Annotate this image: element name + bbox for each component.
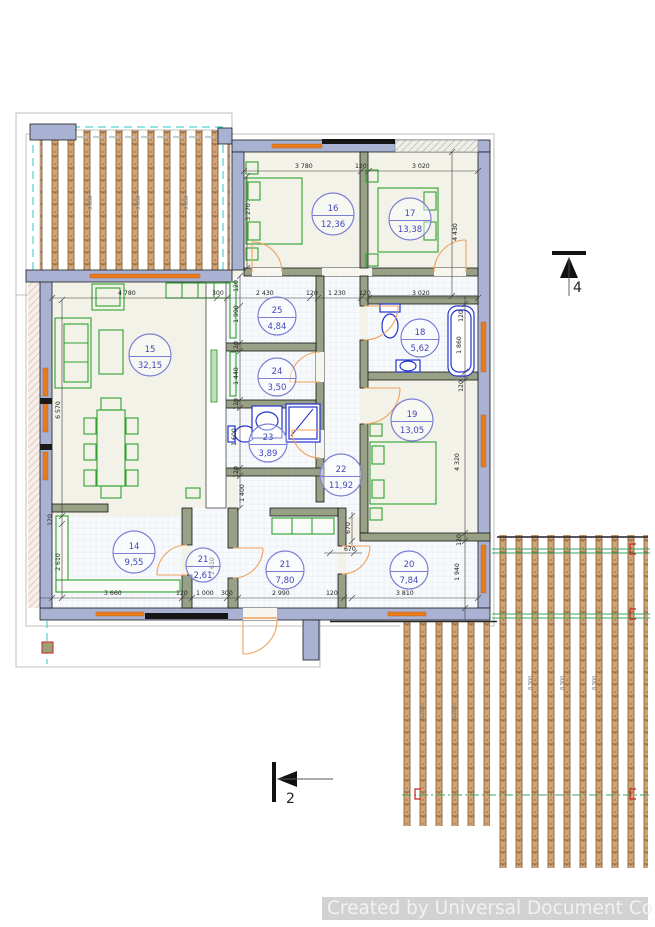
room-label-23: 23 3,89 <box>249 424 287 462</box>
lintel-top <box>322 139 395 144</box>
section-marker-4: 4 <box>552 251 586 296</box>
section-marker-2: 2 <box>272 762 333 807</box>
lintel-bottom <box>145 613 228 619</box>
joist-length-label: 6 280 <box>420 706 426 720</box>
wall-kitchen-stub <box>52 504 108 512</box>
dim-text: 120 <box>47 514 54 526</box>
passage-opening <box>322 268 372 276</box>
dim-text: 120 <box>233 466 240 478</box>
window-post <box>40 398 52 404</box>
dim-text: 2 990 <box>272 590 290 597</box>
dim-text: 1 400 <box>239 484 246 502</box>
dim-text: 3 020 <box>412 290 430 297</box>
dim-text: 1 440 <box>233 367 240 385</box>
dim-text: 1 940 <box>454 563 461 581</box>
section-label: 2 <box>286 791 295 807</box>
room-label-25: 25 4,84 <box>258 297 296 335</box>
dim-text: 120 <box>306 290 318 297</box>
window-right-bedroom <box>481 415 486 467</box>
section-bar <box>272 762 276 802</box>
room-label-17: 17 13,38 <box>389 198 431 240</box>
room-label-16: 16 12,36 <box>312 193 354 235</box>
svg-text:13,05: 13,05 <box>400 426 424 436</box>
dim-text: 120 <box>176 590 188 597</box>
dim-text: 4 430 <box>452 223 459 241</box>
room-label-24: 24 3,50 <box>258 358 296 396</box>
dim-text: 3 660 <box>104 590 122 597</box>
hall-cabinet <box>272 518 334 534</box>
dim-text: 300 <box>221 590 233 597</box>
svg-text:16: 16 <box>328 204 339 214</box>
wall-19-20 <box>360 533 490 541</box>
window-left-3 <box>43 452 48 480</box>
svg-text:24: 24 <box>272 367 283 377</box>
dim-text: 120 <box>233 280 240 292</box>
dim-text: 1 000 <box>196 590 214 597</box>
dim-text: 3 780 <box>295 163 313 170</box>
dim-text: 1 230 <box>328 290 346 297</box>
svg-text:9,55: 9,55 <box>125 558 144 568</box>
wall-left <box>40 272 52 608</box>
joist-length-label: 8 900 <box>528 676 534 690</box>
window-right-bath <box>481 322 486 372</box>
dim-text: 3 270 <box>245 203 252 221</box>
window-bottom-room20 <box>388 612 426 616</box>
dim-text: 2 610 <box>55 553 62 571</box>
svg-text:12,36: 12,36 <box>321 220 345 230</box>
room-label-21b: 21 7,80 <box>266 551 304 589</box>
svg-text:4,84: 4,84 <box>268 322 287 332</box>
room-label-20: 20 7,84 <box>390 551 428 589</box>
door-opening <box>316 352 324 382</box>
svg-text:21: 21 <box>198 555 209 565</box>
wall-hall-stub <box>270 508 338 516</box>
dim-text: 3 020 <box>412 163 430 170</box>
svg-text:7,80: 7,80 <box>276 576 295 586</box>
joist-length-label: 3 650 <box>136 196 142 210</box>
wall-segment <box>182 508 192 545</box>
dim-text: 120 <box>456 534 463 546</box>
dim-text: 670 <box>345 522 352 534</box>
window-top <box>272 144 322 148</box>
porch-details <box>42 620 53 664</box>
watermark-text: Created by Universal Document Converter <box>327 898 655 919</box>
window-living-top <box>90 274 200 278</box>
watermark: Created by Universal Document Converter <box>322 897 655 920</box>
porch-pillar <box>303 620 319 660</box>
dim-text: 6 570 <box>55 401 62 419</box>
dim-text: 120 <box>233 398 240 410</box>
svg-text:21: 21 <box>280 560 291 570</box>
room-label-14: 14 9,55 <box>113 531 155 573</box>
svg-text:3,50: 3,50 <box>268 383 287 393</box>
dim-text: 670 <box>344 546 356 553</box>
floor-plan-drawing: 3 650 3 650 3 650 6 280 6 280 8 900 8 90… <box>0 0 655 927</box>
svg-text:13,38: 13,38 <box>398 225 422 235</box>
dim-text: 120 <box>355 163 367 170</box>
wall-segment <box>228 508 238 548</box>
wall-segment <box>360 340 368 388</box>
wall-segment <box>338 574 346 608</box>
dim-text: 1 990 <box>233 305 240 323</box>
window-post <box>40 444 52 450</box>
joist-length-label: 8 900 <box>560 676 566 690</box>
svg-text:5,62: 5,62 <box>411 344 430 354</box>
exterior-strip-hatch <box>28 282 40 608</box>
svg-text:17: 17 <box>405 209 416 219</box>
door-entrance <box>243 620 277 654</box>
shower-inner <box>289 407 317 439</box>
window-right-room20 <box>481 545 486 593</box>
door-opening <box>252 268 282 276</box>
joist-length-label: 3 650 <box>88 196 94 210</box>
pergola-deck: 3 650 3 650 3 650 <box>30 124 232 275</box>
dim-text: 4 780 <box>118 290 136 297</box>
dim-text: 120 <box>326 590 338 597</box>
porch-post <box>42 642 53 653</box>
washbasin-bowl <box>400 361 416 371</box>
dim-text: 2 430 <box>256 290 274 297</box>
svg-text:20: 20 <box>404 560 415 570</box>
wall-bath-top <box>360 296 478 304</box>
window-bottom-kitchen <box>96 612 144 616</box>
dim-text: 4 320 <box>454 453 461 471</box>
toilet-tank <box>380 304 400 312</box>
joist-length-label: 6 280 <box>452 706 458 720</box>
section-bar <box>552 251 586 255</box>
door-opening <box>434 268 466 276</box>
room-label-18: 18 5,62 <box>401 319 439 357</box>
svg-text:2,61: 2,61 <box>194 571 213 581</box>
dim-text: 120 <box>458 380 465 392</box>
dim-text: 120 <box>458 310 465 322</box>
wall-top-hatched-segment <box>395 140 478 152</box>
room-label-21a: 21 2,61 <box>186 548 220 582</box>
floor-plan-canvas: 3 650 3 650 3 650 6 280 6 280 8 900 8 90… <box>0 0 655 927</box>
svg-text:14: 14 <box>129 542 140 552</box>
pergola-corner-block <box>218 128 232 144</box>
room-label-19: 19 13,05 <box>391 399 433 441</box>
svg-text:19: 19 <box>407 410 418 420</box>
dim-text: 120 <box>359 290 371 297</box>
dim-text: 1 600 <box>231 428 238 446</box>
wall-upper-left <box>232 152 244 270</box>
svg-text:7,84: 7,84 <box>400 576 419 586</box>
terrace-joists-long <box>497 535 648 868</box>
joist-length-label: 3 650 <box>184 196 190 210</box>
window-left-2 <box>43 404 48 432</box>
dim-text: 3 810 <box>396 590 414 597</box>
joist-length-label: 8 900 <box>592 676 598 690</box>
svg-text:18: 18 <box>415 328 426 338</box>
section-label: 4 <box>573 280 582 296</box>
pergola-header-block <box>30 124 76 140</box>
svg-text:3,89: 3,89 <box>259 449 278 459</box>
room-label-22: 22 11,92 <box>320 454 362 496</box>
pergola-joists <box>40 130 230 272</box>
sliding-door <box>211 350 217 402</box>
svg-text:11,92: 11,92 <box>329 481 353 491</box>
window-left-1 <box>43 368 48 396</box>
svg-text:22: 22 <box>336 465 347 475</box>
dim-text: 1 860 <box>456 336 463 354</box>
svg-text:32,15: 32,15 <box>138 361 162 371</box>
room-label-15: 15 32,15 <box>129 334 171 376</box>
svg-text:25: 25 <box>272 306 283 316</box>
dim-text: 120 <box>233 341 240 353</box>
svg-text:23: 23 <box>263 433 274 443</box>
dim-text: 300 <box>212 290 224 297</box>
svg-text:15: 15 <box>145 345 156 355</box>
